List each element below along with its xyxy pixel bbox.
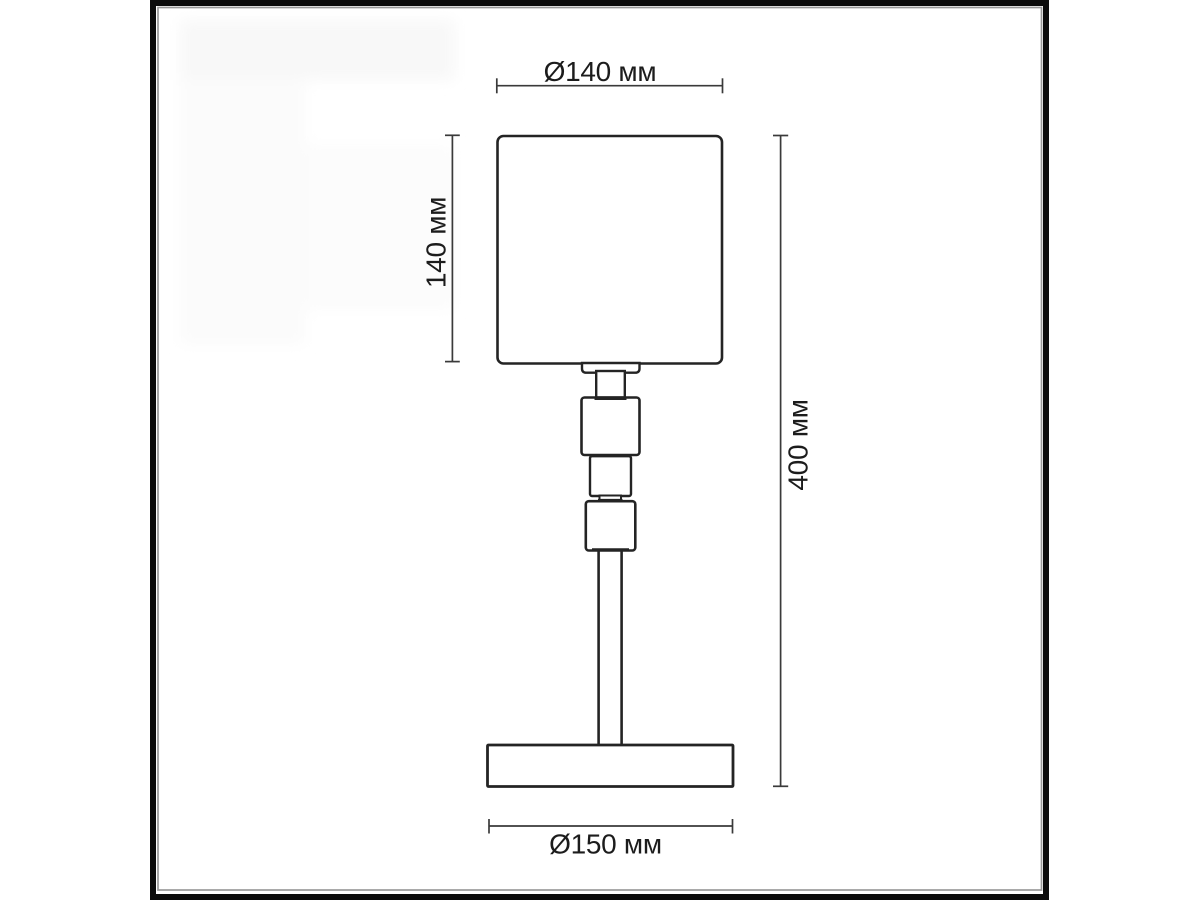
svg-text:140 мм: 140 мм	[421, 197, 452, 288]
svg-text:400 мм: 400 мм	[783, 399, 814, 490]
svg-text:Ø150 мм: Ø150 мм	[549, 829, 662, 860]
svg-text:Ø140 мм: Ø140 мм	[544, 56, 657, 87]
